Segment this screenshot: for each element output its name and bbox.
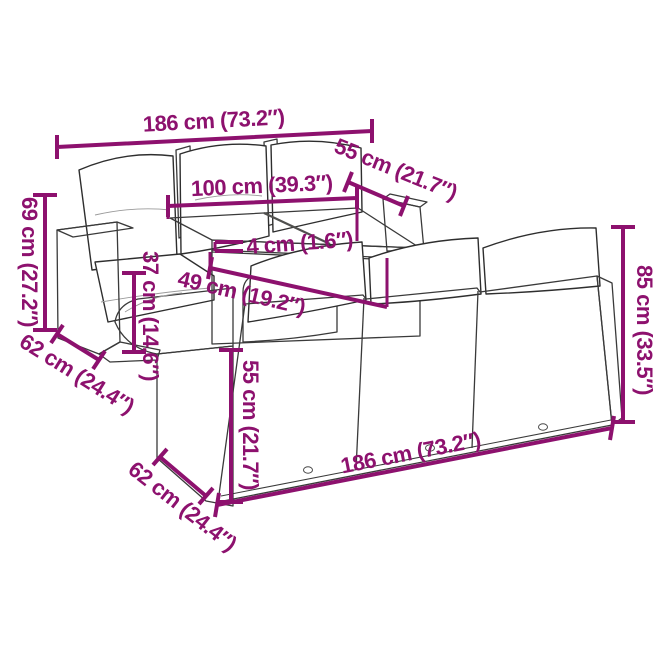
dimension-back-sofa-height: 69 cm (27.2″) xyxy=(17,195,57,330)
backrest-seam xyxy=(472,291,478,448)
dimension-label: 69 cm (27.2″) xyxy=(17,197,42,327)
dimension-label: 37 cm (14.6″) xyxy=(138,251,163,381)
dimension-front-backrest-height: 55 cm (21.7″) xyxy=(219,350,263,502)
dimension-front-sofa-height: 85 cm (33.5″) xyxy=(611,227,657,422)
backrest-seam xyxy=(356,298,364,470)
diagram-canvas: 186 cm (73.2″) 55 cm (21.7″) 100 cm (39.… xyxy=(0,0,666,666)
dimension-label: 186 cm (73.2″) xyxy=(142,104,285,136)
backrest-right-cap xyxy=(597,276,622,425)
dimension-label: 85 cm (33.5″) xyxy=(632,265,657,395)
dimension-label: 186 cm (73.2″) xyxy=(339,427,483,479)
screw-hole xyxy=(539,424,548,430)
dimension-label: 62 cm (24.4″) xyxy=(124,456,242,556)
product-dimension-diagram: 186 cm (73.2″) 55 cm (21.7″) 100 cm (39.… xyxy=(0,0,666,666)
dimension-label: 55 cm (21.7″) xyxy=(238,360,263,490)
screw-hole xyxy=(304,467,313,473)
